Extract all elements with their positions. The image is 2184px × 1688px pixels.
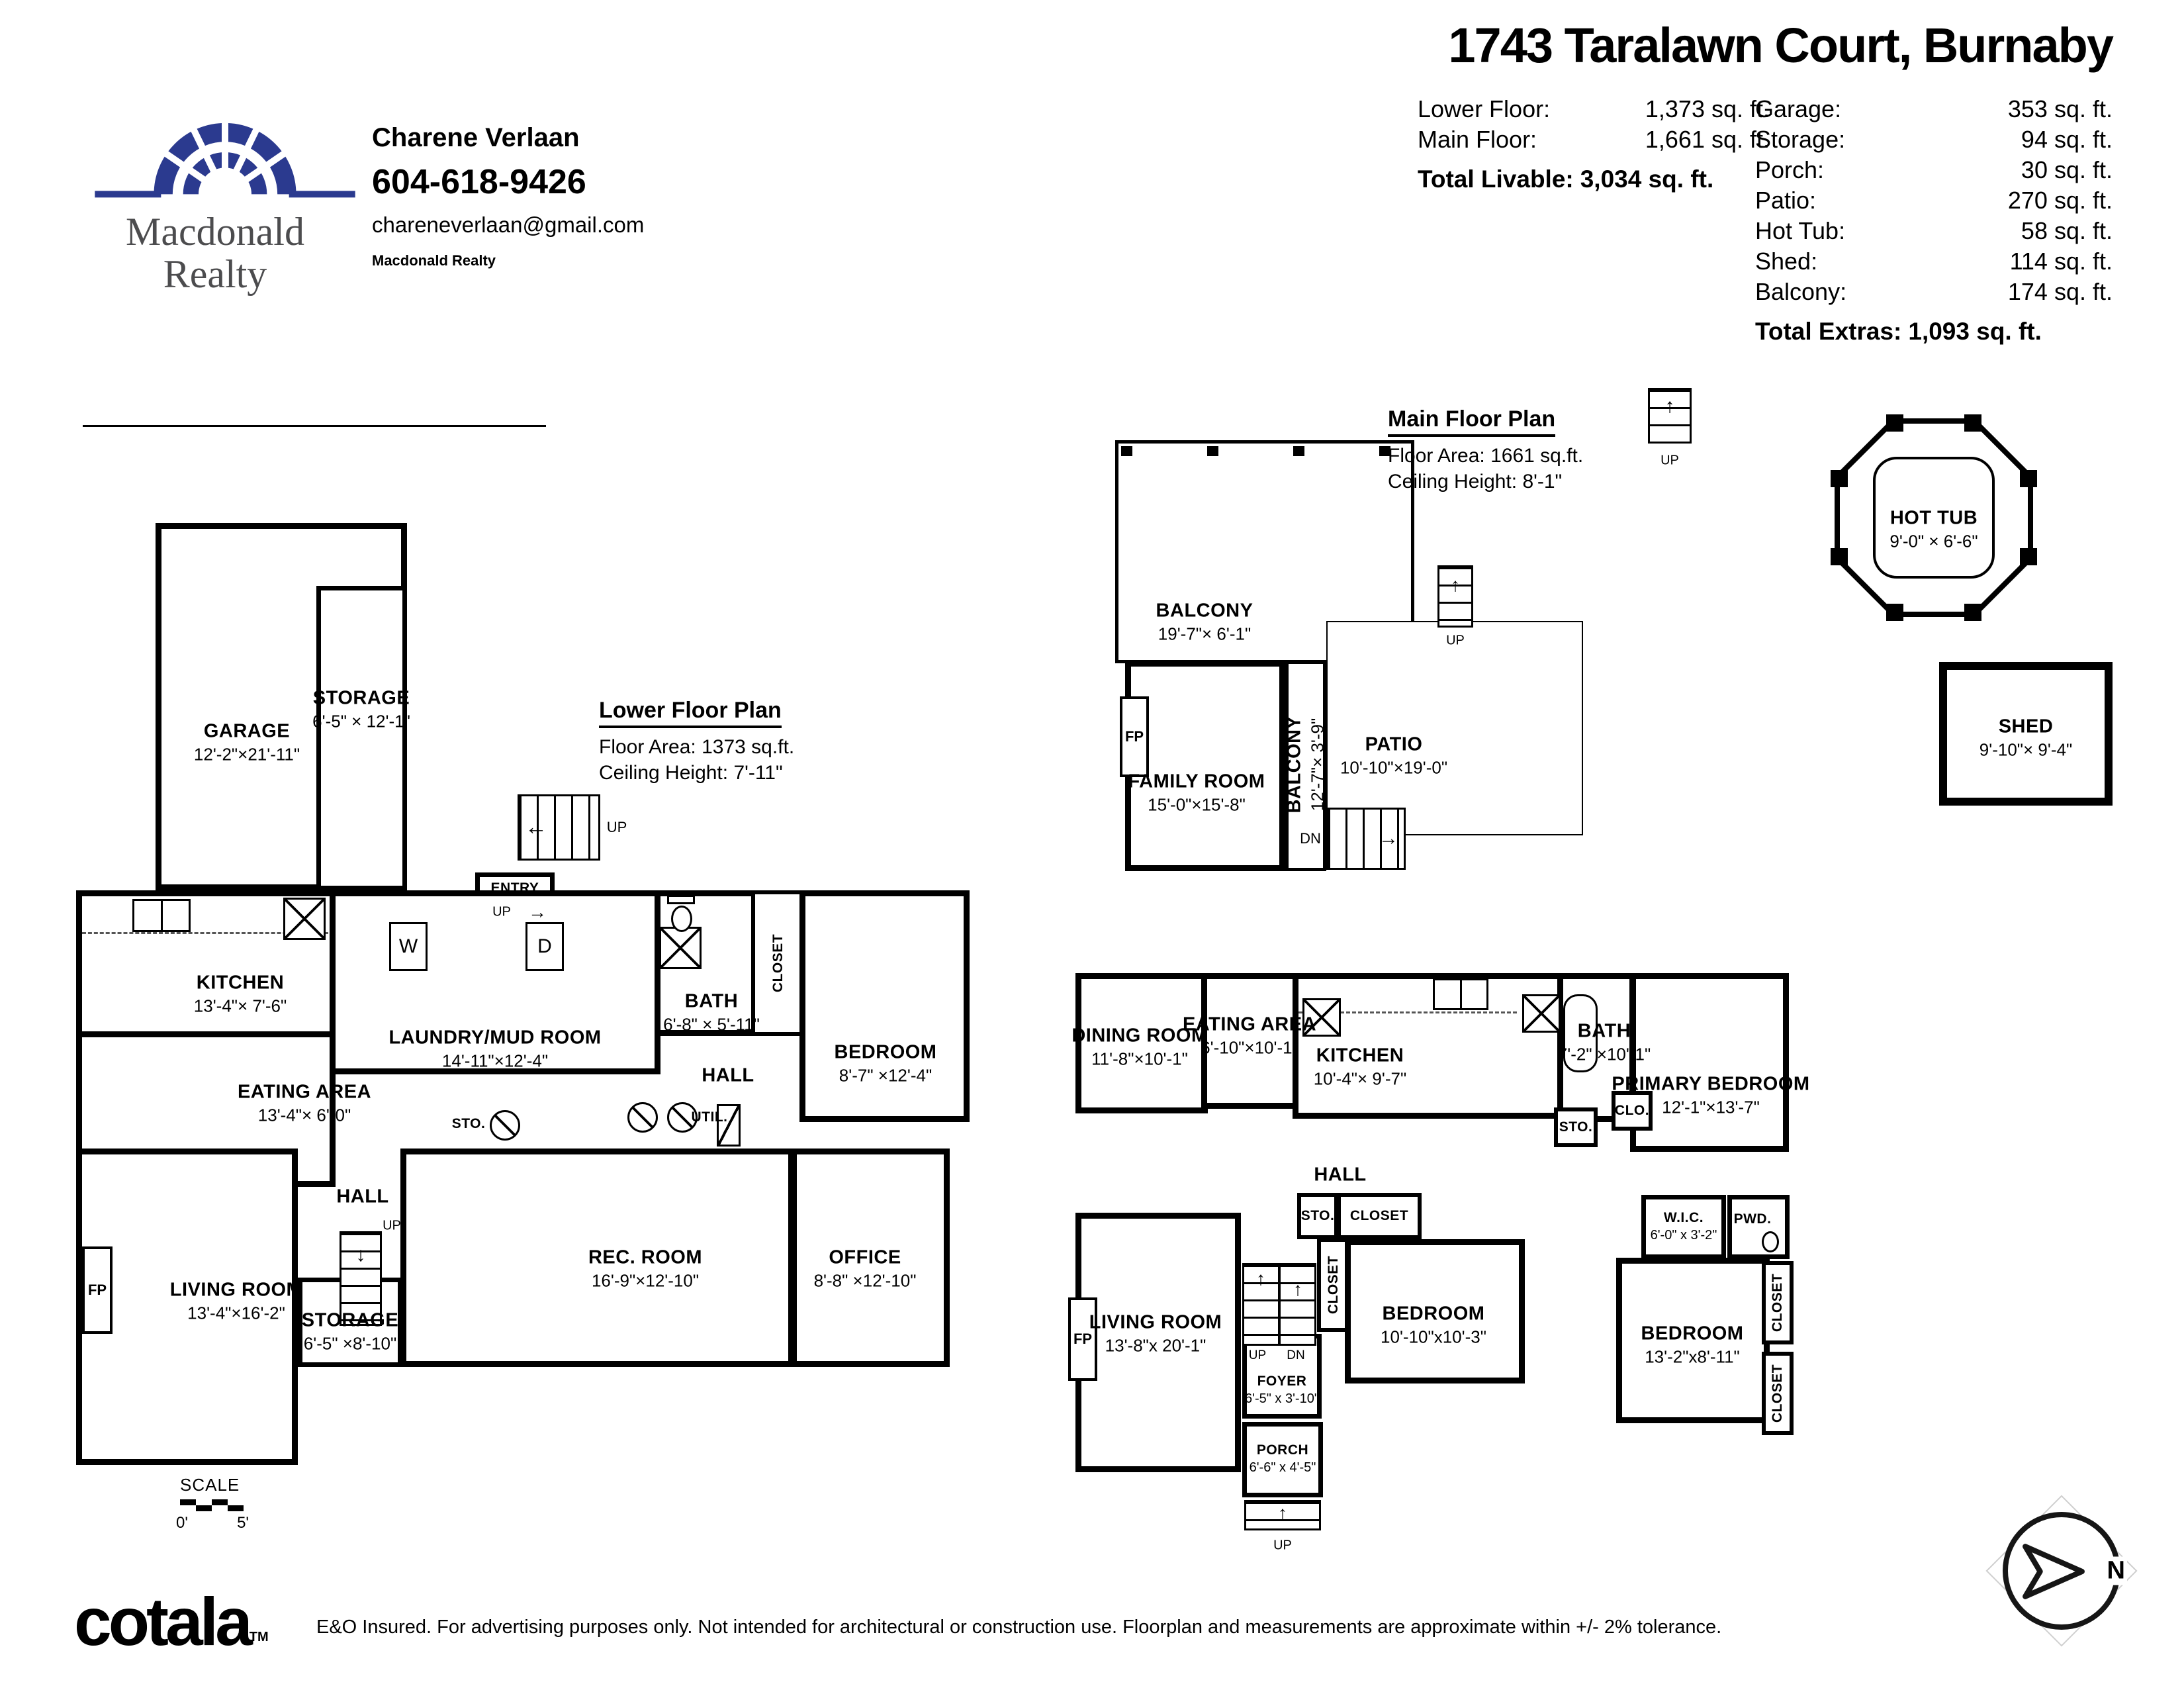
dn-text: DN xyxy=(1300,830,1321,847)
plan-floor-area: Floor Area: 1661 sq.ft. xyxy=(1388,443,1583,469)
plan-floor-area: Floor Area: 1373 sq.ft. xyxy=(599,734,794,760)
room-label-closet-hall: CLOSET xyxy=(1350,1208,1408,1224)
up-text: UP xyxy=(383,1219,401,1233)
plan-ceiling-height: Ceiling Height: 7'-11" xyxy=(599,760,794,786)
stat-label: Porch: xyxy=(1755,155,1824,185)
room-dims: 10'-10"x10'-3" xyxy=(1381,1327,1486,1348)
down-arrow-icon: ↓ xyxy=(356,1244,366,1266)
room-dims: 9'-0" × 6'-6" xyxy=(1889,532,1978,552)
room-name: FAMILY ROOM xyxy=(1128,771,1265,793)
kitchen-sink-icon xyxy=(132,899,191,932)
room-label-bedroom-lower: BEDROOM8'-7" ×12'-4" xyxy=(835,1042,937,1086)
room-label-pwd: PWD. xyxy=(1734,1211,1772,1227)
stat-label: Garage: xyxy=(1755,94,1841,124)
up-text: UP xyxy=(1661,453,1679,468)
room-label-clo: CLO. xyxy=(1615,1103,1649,1119)
fp-letter: FP xyxy=(1125,728,1144,745)
room-name: CLO. xyxy=(1615,1103,1649,1119)
patio-up-label: UP xyxy=(1446,633,1465,649)
scale-start: 0' xyxy=(176,1514,188,1532)
post-icon xyxy=(2020,470,2037,487)
post-icon xyxy=(1831,548,1848,565)
stat-value: 94 sq. ft. xyxy=(2021,124,2113,155)
up-text: UP xyxy=(492,905,511,919)
room-label-bedroom2: BEDROOM13'-2"x8'-11" xyxy=(1641,1323,1744,1368)
stat-total-label: Total Extras: xyxy=(1755,318,1901,346)
agent-card: Charene Verlaan 604-618-9426 chareneverl… xyxy=(372,123,644,269)
room-label-office: OFFICE8'-8" ×12'-10" xyxy=(814,1247,917,1291)
post-icon xyxy=(1886,604,1903,621)
stat-total-label: Total Livable: xyxy=(1418,165,1574,193)
room-dims: 13'-4"× 7'-6" xyxy=(194,996,287,1017)
lower-floor-plan: ← UP ENTRY UP → ↓ UP W D FP GARAGE12'-2"… xyxy=(73,417,973,1542)
stat-label: Hot Tub: xyxy=(1755,216,1845,246)
brand-line2: Realty xyxy=(63,253,367,295)
utility-tank-icon xyxy=(627,1102,658,1133)
room-label-wic: W.I.C.6'-0" x 3'-2" xyxy=(1651,1210,1717,1243)
room-name: EATING AREA xyxy=(238,1082,371,1103)
room-label-storage-upper: STORAGE6'-5" × 12'-1" xyxy=(312,688,410,732)
room-name: FOYER xyxy=(1245,1374,1319,1389)
room-label-laundry: LAUNDRY/MUD ROOM14'-11"×12'-4" xyxy=(388,1027,601,1072)
up-text: UP xyxy=(1273,1538,1292,1553)
trademark: TM xyxy=(250,1630,269,1644)
room-family xyxy=(1125,661,1285,871)
post-icon xyxy=(1831,470,1848,487)
foyer-dn-label: DN xyxy=(1287,1348,1304,1363)
right-arrow-icon: → xyxy=(528,902,547,923)
room-label-hot-tub: HOT TUB9'-0" × 6'-6" xyxy=(1889,508,1978,552)
page-title: 1743 Taralawn Court, Burnaby xyxy=(1448,17,2113,73)
main-plan-title-block: Main Floor Plan Floor Area: 1661 sq.ft. … xyxy=(1388,406,1583,494)
dn-label: DN xyxy=(1300,830,1321,847)
toilet-tank-icon xyxy=(667,895,695,904)
post-icon xyxy=(1886,414,1903,432)
room-name: BALCONY xyxy=(1284,716,1306,814)
room-label-kitchen-lower: KITCHEN13'-4"× 7'-6" xyxy=(194,972,287,1017)
room-label-sto-lower: STO. xyxy=(452,1116,486,1132)
stat-value: 58 sq. ft. xyxy=(2021,216,2113,246)
stat-value: 353 sq. ft. xyxy=(2008,94,2113,124)
north-arrow-icon xyxy=(2015,1537,2093,1605)
compass: N xyxy=(1992,1501,2131,1640)
stat-row-garage: Garage:353 sq. ft. xyxy=(1755,94,2113,124)
up-arrow-icon: ↑ xyxy=(1293,1279,1302,1300)
room-name: OFFICE xyxy=(814,1247,917,1269)
room-name: PRIMARY BEDROOM xyxy=(1612,1074,1809,1096)
room-dims: 13'-2"x8'-11" xyxy=(1641,1347,1744,1368)
up-arrow-icon: ↑ xyxy=(1665,395,1675,418)
toilet-bowl-icon xyxy=(1762,1231,1779,1252)
room-name: LIVING ROOM xyxy=(1089,1312,1222,1334)
room-name: UTIL. xyxy=(692,1109,728,1125)
washer-icon: W xyxy=(389,922,428,971)
fp-letter: FP xyxy=(88,1282,107,1299)
compass-north-label: N xyxy=(2105,1557,2127,1585)
stair-up-label: UP xyxy=(607,819,627,836)
toilet-bowl-icon xyxy=(671,906,692,932)
room-dims: 12'-7"× 3'-9" xyxy=(1308,716,1328,814)
room-name: STORAGE xyxy=(312,688,410,710)
room-name: BEDROOM xyxy=(835,1042,937,1064)
room-name: W.I.C. xyxy=(1651,1210,1717,1226)
room-dims: 12'-2"×21'-11" xyxy=(194,745,300,765)
stat-label: Main Floor: xyxy=(1418,124,1537,155)
room-name: HALL xyxy=(336,1186,388,1208)
kitchen-sink-icon xyxy=(1433,978,1488,1010)
room-dims: 7'-2" ×10'-1" xyxy=(1558,1045,1651,1065)
stat-label: Storage: xyxy=(1755,124,1845,155)
room-name: BEDROOM xyxy=(1641,1323,1744,1345)
room-name: BEDROOM xyxy=(1381,1303,1486,1325)
room-dims: 6'-10"×10'-1" xyxy=(1183,1038,1316,1058)
brand-wordmark: Macdonald Realty xyxy=(63,211,367,295)
room-label-hall-upper: HALL xyxy=(702,1065,754,1087)
agent-brokerage: Macdonald Realty xyxy=(372,252,644,269)
cotala-logo: cotalaTM xyxy=(74,1583,269,1661)
room-label-kitchen-main: KITCHEN10'-4"× 9'-7" xyxy=(1314,1045,1406,1090)
room-dims: 6'-5" x 3'-10" xyxy=(1245,1391,1319,1407)
room-label-balcony-side: BALCONY12'-7"× 3'-9" xyxy=(1284,716,1328,814)
room-dims: 15'-0"×15'-8" xyxy=(1128,795,1265,816)
room-name: CLOSET xyxy=(1326,1256,1342,1314)
room-dims: 13'-4"× 6'-0" xyxy=(238,1105,371,1126)
room-name: EATING AREA xyxy=(1183,1014,1316,1036)
room-label-shed: SHED9'-10"× 9'-4" xyxy=(1979,716,2072,761)
stat-value: 270 sq. ft. xyxy=(2008,185,2113,216)
room-label-bath-lower: BATH6'-8" × 5'-11" xyxy=(663,991,760,1035)
up-text: UP xyxy=(1249,1348,1266,1362)
room-label-bath-main: BATH7'-2" ×10'-1" xyxy=(1558,1021,1651,1065)
plan-title: Lower Floor Plan xyxy=(599,698,782,728)
stat-value: 174 sq. ft. xyxy=(2008,277,2113,307)
room-label-living-main: LIVING ROOM13'-8"x 20'-1" xyxy=(1089,1312,1222,1356)
stats-extras: Garage:353 sq. ft. Storage:94 sq. ft. Po… xyxy=(1755,94,2113,346)
room-label-family: FAMILY ROOM15'-0"×15'-8" xyxy=(1128,771,1265,816)
room-label-storage-lower: STORAGE6'-5" ×8'-10" xyxy=(302,1310,398,1354)
plan-ceiling-height: Ceiling Height: 8'-1" xyxy=(1388,469,1583,494)
room-name: HOT TUB xyxy=(1889,508,1978,530)
room-dims: 6'-5" × 12'-1" xyxy=(312,712,410,732)
room-name: LIVING ROOM xyxy=(170,1280,302,1301)
brand-line1: Macdonald xyxy=(63,211,367,253)
room-label-patio: PATIO10'-10"×19'-0" xyxy=(1340,734,1447,778)
right-arrow-icon: → xyxy=(1379,827,1398,850)
room-dims: 10'-10"×19'-0" xyxy=(1340,758,1447,778)
room-dims: 6'-6" x 4'-5" xyxy=(1250,1460,1316,1476)
stat-total-value: 3,034 sq. ft. xyxy=(1580,165,1714,193)
room-name: BATH xyxy=(663,991,760,1013)
stat-total-extras: Total Extras: 1,093 sq. ft. xyxy=(1755,318,2113,346)
room-name: CLOSET xyxy=(1770,1364,1786,1423)
room-dims: 6'-8" × 5'-11" xyxy=(663,1015,760,1035)
room-dims: 6'-5" ×8'-10" xyxy=(302,1334,398,1354)
up-arrow-icon: ↑ xyxy=(1451,575,1460,596)
room-name: BALCONY xyxy=(1156,600,1253,622)
room-patio xyxy=(1326,621,1583,835)
room-label-eating-lower: EATING AREA13'-4"× 6'-0" xyxy=(238,1082,371,1126)
post-icon xyxy=(2020,548,2037,565)
washer-letter: W xyxy=(399,935,418,958)
fireplace-living-lower: FP xyxy=(82,1246,113,1334)
room-dims: 8'-8" ×12'-10" xyxy=(814,1271,917,1291)
stat-value: 114 sq. ft. xyxy=(2010,246,2113,277)
room-storage-upper xyxy=(316,586,407,890)
dryer-icon: D xyxy=(525,922,564,971)
lower-plan-title-block: Lower Floor Plan Floor Area: 1373 sq.ft.… xyxy=(599,698,794,786)
stat-row-balcony: Balcony:174 sq. ft. xyxy=(1755,277,2113,307)
stat-row-hottub: Hot Tub:58 sq. ft. xyxy=(1755,216,2113,246)
room-name: SHED xyxy=(1979,716,2072,738)
room-label-hall-main: HALL xyxy=(1314,1164,1366,1186)
room-label-eating-main: EATING AREA6'-10"×10'-1" xyxy=(1183,1014,1316,1058)
railing-posts xyxy=(1121,446,1408,456)
room-name: CLOSET xyxy=(1350,1208,1408,1224)
stat-row-patio: Patio:270 sq. ft. xyxy=(1755,185,2113,216)
up-text: UP xyxy=(607,819,627,835)
room-dims: 16'-9"×12'-10" xyxy=(588,1271,702,1291)
scale-end: 5' xyxy=(237,1514,249,1532)
room-label-closet-lower: CLOSET xyxy=(770,934,786,992)
post-icon xyxy=(1964,414,1981,432)
stat-total-livable: Total Livable: 3,034 sq. ft. xyxy=(1418,165,1770,193)
room-name: STO. xyxy=(1559,1119,1593,1135)
agent-name: Charene Verlaan xyxy=(372,123,644,153)
stove-icon xyxy=(1522,994,1561,1033)
room-name: KITCHEN xyxy=(1314,1045,1406,1067)
room-label-porch: PORCH6'-6" x 4'-5" xyxy=(1250,1442,1316,1476)
main-floor-plan: Main Floor Plan Floor Area: 1661 sq.ft. … xyxy=(1059,377,2158,1569)
stats-livable: Lower Floor: 1,373 sq. ft. Main Floor: 1… xyxy=(1418,94,1770,193)
stat-value: 1,661 sq. ft. xyxy=(1645,124,1770,155)
room-dims: 14'-11"×12'-4" xyxy=(388,1051,601,1072)
stat-value: 1,373 sq. ft. xyxy=(1645,94,1770,124)
room-label-sto-hall: STO. xyxy=(1301,1208,1335,1224)
stat-row-porch: Porch:30 sq. ft. xyxy=(1755,155,2113,185)
scale-title: SCALE xyxy=(180,1475,249,1495)
up-text: UP xyxy=(1446,633,1465,648)
roof-line xyxy=(83,425,546,427)
room-label-closet-r1: CLOSET xyxy=(1770,1274,1786,1332)
room-name: PATIO xyxy=(1340,734,1447,756)
disclaimer-text: E&O Insured. For advertising purposes on… xyxy=(316,1617,1721,1638)
dn-text: DN xyxy=(1287,1348,1304,1362)
room-dims: 8'-7" ×12'-4" xyxy=(835,1066,937,1086)
hall-up-label: UP xyxy=(383,1219,401,1234)
room-label-living-lower: LIVING ROOM13'-4"×16'-2" xyxy=(170,1280,302,1324)
scale-bar-graphic xyxy=(180,1499,244,1511)
stat-total-value: 1,093 sq. ft. xyxy=(1908,318,2042,346)
room-name: STO. xyxy=(452,1116,486,1132)
room-name: ENTRY xyxy=(491,880,539,896)
stat-row-storage: Storage:94 sq. ft. xyxy=(1755,124,2113,155)
room-name: STO. xyxy=(1301,1208,1335,1224)
room-name: HALL xyxy=(702,1065,754,1087)
scale-bar: SCALE 0' 5' xyxy=(180,1475,249,1532)
plan-title: Main Floor Plan xyxy=(1388,406,1555,437)
room-label-rec: REC. ROOM16'-9"×12'-10" xyxy=(588,1247,702,1291)
room-name: PWD. xyxy=(1734,1211,1772,1227)
shower-icon xyxy=(659,927,702,969)
utility-tank-icon xyxy=(490,1110,520,1141)
entry-up-label: UP xyxy=(492,905,511,920)
room-name: GARAGE xyxy=(194,721,300,743)
room-label-closet-stair: CLOSET xyxy=(1326,1256,1342,1314)
stat-value: 30 sq. ft. xyxy=(2021,155,2113,185)
stat-label: Balcony: xyxy=(1755,277,1846,307)
stat-label: Shed: xyxy=(1755,246,1817,277)
room-label-entry: ENTRY xyxy=(491,880,539,896)
foyer-up-label: UP xyxy=(1249,1348,1266,1363)
stat-row-shed: Shed:114 sq. ft. xyxy=(1755,246,2113,277)
up-arrow-icon: ↑ xyxy=(1256,1268,1265,1289)
agent-phone: 604-618-9426 xyxy=(372,162,644,202)
dryer-letter: D xyxy=(537,935,552,958)
room-label-hall-lower: HALL xyxy=(336,1186,388,1208)
stat-label: Lower Floor: xyxy=(1418,94,1550,124)
room-name: CLOSET xyxy=(770,934,786,992)
porch-up-label: UP xyxy=(1273,1538,1292,1554)
room-name: KITCHEN xyxy=(194,972,287,994)
up-arrow-icon: ↑ xyxy=(1278,1503,1287,1524)
room-label-bedroom1: BEDROOM10'-10"x10'-3" xyxy=(1381,1303,1486,1348)
room-dims: 13'-4"×16'-2" xyxy=(170,1303,302,1324)
stove-icon xyxy=(283,898,326,940)
stair-divider xyxy=(1278,1263,1281,1346)
agent-email: chareneverlaan@gmail.com xyxy=(372,212,644,238)
room-name: CLOSET xyxy=(1770,1274,1786,1332)
room-name: HALL xyxy=(1314,1164,1366,1186)
room-dims: 19'-7"× 6'-1" xyxy=(1156,624,1253,645)
room-label-balcony-top: BALCONY19'-7"× 6'-1" xyxy=(1156,600,1253,645)
stat-row-lower-floor: Lower Floor: 1,373 sq. ft. xyxy=(1418,94,1770,124)
room-bedroom-lower xyxy=(799,890,970,1122)
room-dims: 9'-10"× 9'-4" xyxy=(1979,740,2072,761)
macdonald-realty-logo-icon xyxy=(93,101,357,204)
room-label-sto-bath: STO. xyxy=(1559,1119,1593,1135)
room-primary xyxy=(1630,973,1789,1152)
room-name: STORAGE xyxy=(302,1310,398,1332)
stat-label: Patio: xyxy=(1755,185,1816,216)
room-label-util: UTIL. xyxy=(692,1109,728,1125)
room-label-closet-r2: CLOSET xyxy=(1770,1364,1786,1423)
room-label-foyer: FOYER6'-5" x 3'-10" xyxy=(1245,1374,1319,1407)
left-arrow-icon: ← xyxy=(525,815,547,841)
room-label-garage: GARAGE12'-2"×21'-11" xyxy=(194,721,300,765)
post-icon xyxy=(1964,604,1981,621)
cotala-wordmark: cotala xyxy=(74,1584,250,1660)
stat-row-main-floor: Main Floor: 1,661 sq. ft. xyxy=(1418,124,1770,155)
yard-up-label: UP xyxy=(1661,453,1679,469)
room-name: PORCH xyxy=(1250,1442,1316,1458)
room-dims: 10'-4"× 9'-7" xyxy=(1314,1069,1406,1090)
room-dims: 6'-0" x 3'-2" xyxy=(1651,1228,1717,1243)
room-name: BATH xyxy=(1558,1021,1651,1043)
room-dims: 13'-8"x 20'-1" xyxy=(1089,1336,1222,1356)
room-name: LAUNDRY/MUD ROOM xyxy=(388,1027,601,1049)
room-name: REC. ROOM xyxy=(588,1247,702,1269)
fireplace-family: FP xyxy=(1120,696,1149,777)
